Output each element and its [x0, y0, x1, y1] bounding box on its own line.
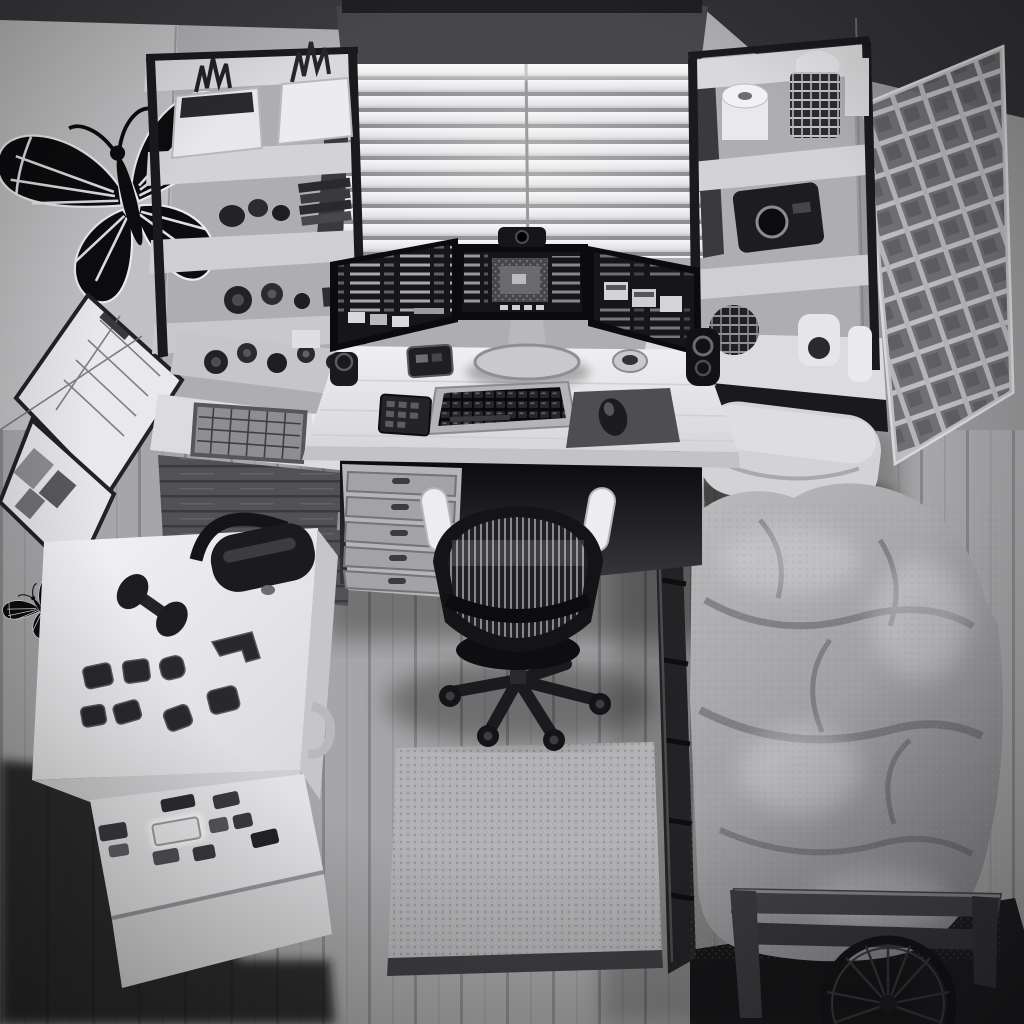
- room-illustration: Monochrome top-down render of a small be…: [0, 0, 1024, 1024]
- vignette-overlay: [0, 0, 1024, 1024]
- scene-room: Monochrome top-down render of a small be…: [0, 0, 1024, 1024]
